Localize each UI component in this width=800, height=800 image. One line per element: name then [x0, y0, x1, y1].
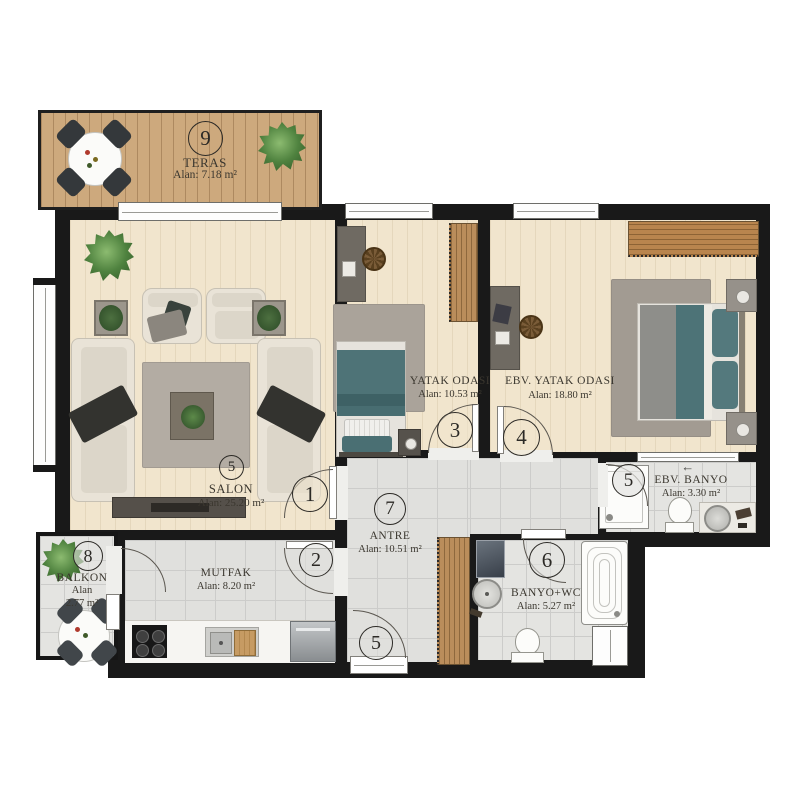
- shower-ring: [599, 559, 610, 607]
- yatak-desk: [337, 226, 366, 302]
- coffee-table-plant-icon: [181, 405, 205, 429]
- yatak-desk-stool: [362, 247, 386, 271]
- balkon-name: BALKON: [37, 572, 127, 584]
- salon-door-circle: 1: [292, 476, 328, 512]
- salon-bay-window: [33, 284, 56, 466]
- mutfak-sink: [205, 627, 259, 657]
- ebv-desk: [490, 286, 520, 370]
- yatak-wardrobe: [449, 223, 478, 322]
- salon-plant-pot: [94, 300, 128, 336]
- balkon-area-value: 2.77 m²: [37, 598, 127, 609]
- salon-plant-pot: [252, 300, 286, 336]
- window-rail: [45, 288, 46, 462]
- yatak-door-number: 3: [450, 418, 461, 443]
- bed-blanket-fold: [337, 406, 405, 416]
- banyo-wc-mirror-cabinet: [476, 540, 505, 578]
- entrance-door-number: 5: [371, 632, 381, 655]
- yatak-nightstand: [398, 429, 421, 456]
- floor-plan: 9 TERAS Alan: 7.18 m²: [0, 0, 800, 800]
- bed-blanket-teal: [676, 305, 704, 419]
- sink-cutting-board: [234, 630, 256, 656]
- ebv-banyo-toilet-tank: [665, 522, 694, 533]
- bed-headboard: [339, 452, 403, 457]
- teras-table-decor: [85, 150, 90, 155]
- ebv-nightstand: [726, 279, 757, 312]
- bed-pillow: [712, 361, 738, 409]
- stove-burner: [136, 644, 149, 657]
- salon-name: SALON: [171, 482, 291, 497]
- salon-terrace-window: [118, 202, 282, 221]
- yatak-door-circle: 3: [437, 412, 473, 448]
- balkon-table-decor: [75, 627, 80, 632]
- desk-item: [492, 304, 511, 325]
- sink-drain: [219, 641, 223, 645]
- bed-headboard: [739, 304, 745, 420]
- room-antre-corridor-floor: [470, 458, 598, 534]
- nightstand-knob: [405, 438, 417, 450]
- entrance-door-circle: 5: [359, 626, 393, 660]
- banyo-wc-area: Alan: 5.27 m²: [476, 601, 616, 612]
- ebv-yatak-door-number: 4: [516, 425, 527, 450]
- antre-number: 7: [385, 498, 395, 520]
- mutfak-door-opening: [334, 548, 348, 596]
- nightstand-knob: [736, 290, 750, 304]
- teras-table-decor: [93, 157, 98, 162]
- banyo-wc-door-circle: 6: [529, 542, 565, 578]
- desk-item: [342, 261, 356, 277]
- door-rail: [354, 665, 404, 666]
- banyo-wc-toilet-bowl: [515, 628, 540, 655]
- ebv-yatak-odasi-window: [513, 203, 599, 219]
- salon-door-number: 1: [305, 482, 316, 507]
- mutfak-door-number: 2: [311, 549, 321, 572]
- balkon-area-label: Alan: [37, 585, 127, 596]
- pot-plant-icon: [257, 305, 281, 331]
- window-rail: [641, 457, 735, 458]
- balkon-number-circle: 8: [73, 541, 103, 571]
- teras-table-decor: [87, 163, 92, 168]
- banyo-wc-door-number: 6: [542, 548, 553, 573]
- salon-armchair: [142, 288, 202, 344]
- mutfak-fridge: [290, 621, 336, 662]
- banyo-wc-toilet-tank: [511, 652, 544, 663]
- window-rail: [122, 212, 278, 213]
- window-rail: [349, 211, 429, 212]
- stove-burner: [152, 644, 165, 657]
- ebv-yatak-odasi-area: Alan: 18.80 m²: [485, 390, 635, 401]
- window-rail: [610, 630, 611, 662]
- desk-item: [495, 331, 510, 345]
- window-rail: [517, 211, 595, 212]
- mutfak-door-circle: 2: [299, 543, 333, 577]
- antre-name: ANTRE: [330, 530, 450, 542]
- bed-sheet: [704, 305, 712, 419]
- armchair-blanket: [146, 309, 187, 343]
- banyo-wc-name: BANYO+WC: [476, 587, 616, 599]
- ebv-bed: [637, 303, 745, 421]
- nightstand-knob: [736, 423, 750, 437]
- bay-window-cap: [33, 278, 56, 285]
- antre-wardrobe: [437, 537, 470, 665]
- ebv-yatak-door-circle: 4: [503, 419, 540, 456]
- yatak-odasi-window: [345, 203, 433, 219]
- bed-pillow: [342, 436, 392, 452]
- banyo-wc-shower: [581, 541, 628, 625]
- antre-number-circle: 7: [374, 493, 406, 525]
- banyo-wc-shaft-window: [592, 626, 628, 666]
- vanity-accessory: [735, 507, 752, 519]
- salon-number-circle: 5: [219, 455, 244, 480]
- ebv-banyo-vanity: [699, 502, 756, 533]
- ebv-banyo-name: EBV. BANYO: [621, 474, 761, 486]
- stove-burner: [152, 630, 165, 643]
- ebv-banyo-toilet-bowl: [668, 497, 692, 524]
- vent-arrow-icon: ←: [668, 459, 708, 475]
- fridge-handle: [296, 628, 330, 631]
- sink-basin: [210, 632, 232, 654]
- bed-blanket-grey: [640, 305, 678, 419]
- teras-number-circle: 9: [188, 121, 223, 156]
- antre-area: Alan: 10.51 m²: [330, 544, 450, 555]
- teras-area: Alan: 7.18 m²: [145, 169, 265, 181]
- ebv-yatak-odasi-name: EBV. YATAK ODASI: [485, 375, 635, 387]
- ebv-yatak-door-leaf: [497, 406, 504, 454]
- mutfak-area: Alan: 8.20 m²: [166, 581, 286, 592]
- mutfak-stove: [132, 625, 167, 658]
- vanity-faucet: [738, 523, 747, 528]
- ebv-nightstand: [726, 412, 757, 445]
- ebv-desk-stool: [519, 315, 543, 339]
- salon-coffee-table: [170, 392, 214, 440]
- vanity-basin: [704, 505, 731, 532]
- mutfak-name: MUTFAK: [166, 567, 286, 579]
- ebv-wardrobe: [628, 221, 759, 257]
- banyo-wc-door-leaf: [521, 529, 566, 539]
- shower-drain: [606, 514, 613, 521]
- teras-number: 9: [200, 126, 211, 151]
- salon-number: 5: [228, 459, 236, 476]
- bed-pillow: [712, 309, 738, 357]
- ebv-banyo-area: Alan: 3.30 m²: [621, 488, 761, 499]
- salon-sofa-left: [71, 338, 135, 502]
- balkon-number: 8: [84, 546, 93, 567]
- bay-window-cap: [33, 465, 56, 472]
- stove-burner: [136, 630, 149, 643]
- balkon-table-decor: [83, 633, 88, 638]
- pot-plant-icon: [99, 305, 123, 331]
- salon-area: Alan: 25.20 m²: [171, 497, 291, 509]
